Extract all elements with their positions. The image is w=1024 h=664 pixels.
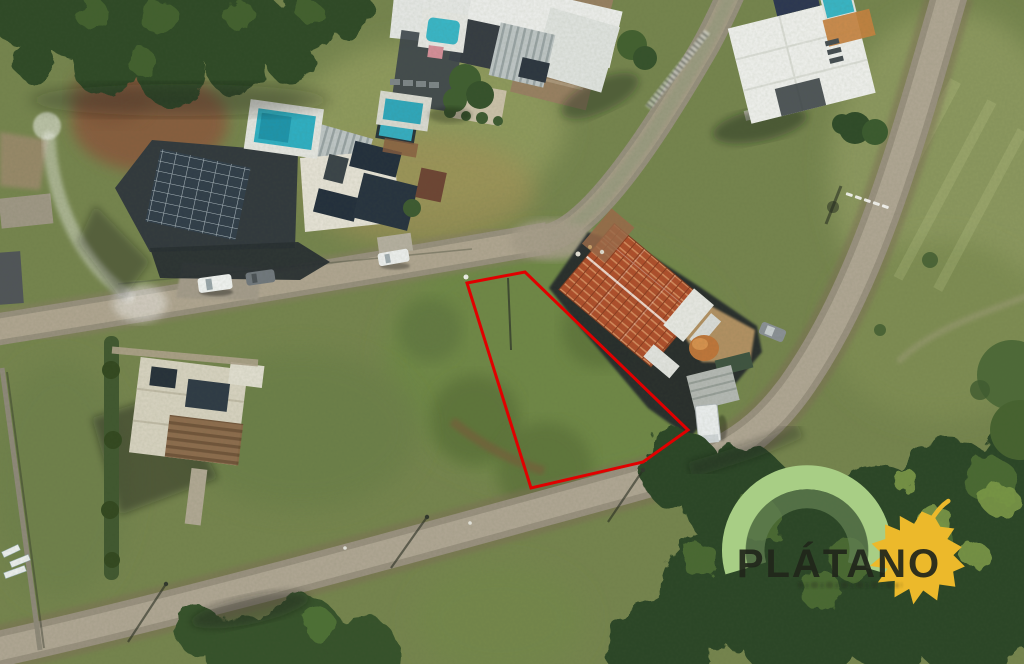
watermark-brand-text: PLÁTANO (737, 541, 941, 586)
satellite-photo: PLÁTANO (0, 0, 1024, 664)
aerial-listing-image: PLÁTANO (0, 0, 1024, 664)
